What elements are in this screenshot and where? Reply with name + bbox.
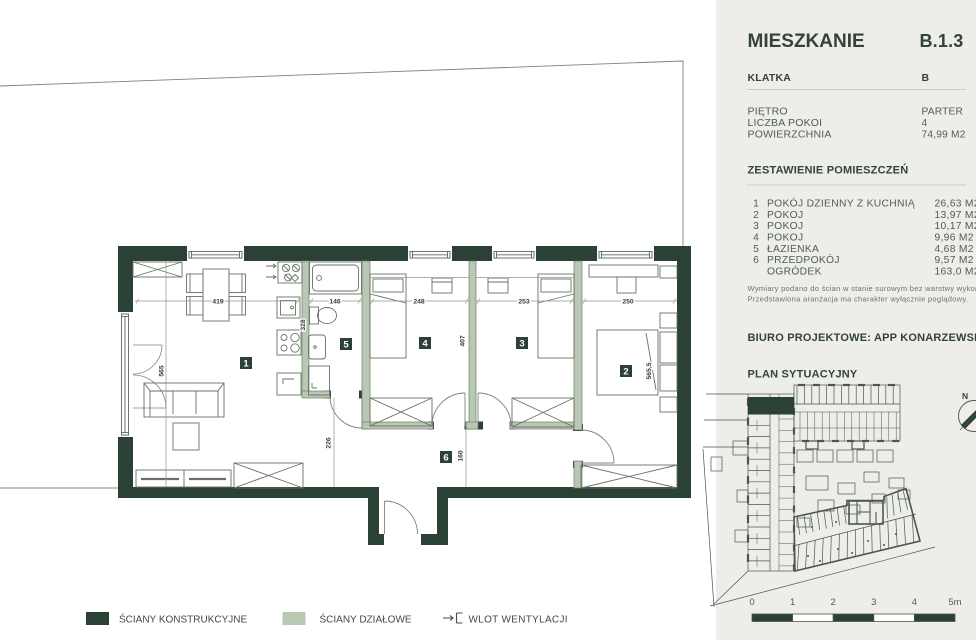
svg-text:KLATKA: KLATKA — [748, 72, 792, 84]
svg-text:4: 4 — [753, 233, 759, 244]
svg-text:163,0 M2: 163,0 M2 — [935, 266, 976, 277]
svg-text:13,97 M2: 13,97 M2 — [935, 210, 976, 221]
svg-text:248: 248 — [413, 299, 425, 306]
svg-text:PARTER: PARTER — [922, 107, 964, 118]
svg-text:0: 0 — [749, 597, 754, 608]
svg-text:Przedstawiona aranżacja ma cha: Przedstawiona aranżacja ma charakter wył… — [748, 295, 969, 304]
svg-text:407: 407 — [460, 335, 467, 347]
svg-text:MIESZKANIE: MIESZKANIE — [748, 31, 865, 52]
svg-text:WLOT WENTYLACJI: WLOT WENTYLACJI — [469, 615, 568, 626]
svg-text:5: 5 — [343, 339, 349, 350]
svg-text:26,63 M2: 26,63 M2 — [935, 199, 976, 210]
svg-text:1: 1 — [243, 358, 249, 369]
svg-text:6: 6 — [753, 255, 759, 266]
svg-text:2: 2 — [831, 597, 836, 608]
svg-text:2: 2 — [753, 210, 759, 221]
svg-text:PIĘTRO: PIĘTRO — [748, 106, 788, 118]
svg-text:250: 250 — [622, 299, 634, 306]
svg-text:9,57 M2: 9,57 M2 — [935, 255, 974, 266]
svg-text:10,17 M2: 10,17 M2 — [935, 221, 976, 232]
svg-text:253: 253 — [518, 299, 530, 306]
svg-text:3: 3 — [519, 338, 524, 349]
svg-text:328: 328 — [300, 319, 307, 331]
svg-text:ŚCIANY DZIAŁOWE: ŚCIANY DZIAŁOWE — [320, 613, 412, 626]
svg-text:565: 565 — [159, 365, 166, 377]
svg-text:POKÓJ DZIENNY Z KUCHNIĄ: POKÓJ DZIENNY Z KUCHNIĄ — [767, 197, 915, 210]
svg-text:PRZEDPOKÓJ: PRZEDPOKÓJ — [767, 253, 840, 266]
svg-text:565,5: 565,5 — [646, 362, 653, 379]
svg-text:B.1.3: B.1.3 — [919, 31, 963, 51]
svg-text:1: 1 — [753, 199, 759, 210]
svg-text:419: 419 — [212, 299, 224, 306]
svg-text:POKOJ: POKOJ — [767, 210, 803, 221]
svg-text:226: 226 — [326, 437, 333, 449]
svg-text:POKOJ: POKOJ — [767, 233, 803, 244]
svg-text:OGRÓDEK: OGRÓDEK — [767, 264, 822, 277]
svg-text:N: N — [962, 391, 968, 401]
svg-text:6: 6 — [443, 452, 448, 463]
svg-text:3: 3 — [871, 597, 876, 608]
svg-text:BIURO PROJEKTOWE: APP KONARZEW: BIURO PROJEKTOWE: APP KONARZEWSKI PRACOW… — [748, 332, 976, 344]
svg-text:PLAN SYTUACYJNY: PLAN SYTUACYJNY — [748, 369, 858, 381]
svg-text:5m: 5m — [948, 597, 961, 608]
svg-text:160: 160 — [458, 450, 465, 462]
svg-text:POKOJ: POKOJ — [767, 221, 803, 232]
svg-text:4,68 M2: 4,68 M2 — [935, 244, 974, 255]
svg-text:4: 4 — [912, 597, 917, 608]
svg-text:ZESTAWIENIE POMIESZCZEŃ: ZESTAWIENIE POMIESZCZEŃ — [748, 164, 909, 177]
svg-text:B: B — [922, 72, 930, 84]
svg-text:Wymiary podano do ścian w stan: Wymiary podano do ścian w stanie surowym… — [748, 284, 976, 293]
svg-text:74,99 M2: 74,99 M2 — [922, 129, 966, 140]
svg-text:4: 4 — [922, 118, 928, 129]
svg-text:146: 146 — [329, 299, 341, 306]
svg-text:LICZBA POKOI: LICZBA POKOI — [748, 117, 823, 129]
svg-text:ŚCIANY KONSTRUKCYJNE: ŚCIANY KONSTRUKCYJNE — [119, 613, 248, 626]
svg-text:3: 3 — [753, 221, 759, 232]
svg-text:5: 5 — [753, 244, 759, 255]
svg-text:POWIERZCHNIA: POWIERZCHNIA — [748, 128, 832, 140]
svg-text:1: 1 — [790, 597, 795, 608]
svg-text:9,96 M2: 9,96 M2 — [935, 233, 974, 244]
svg-text:ŁAZIENKA: ŁAZIENKA — [767, 244, 819, 255]
svg-text:2: 2 — [623, 366, 628, 377]
svg-text:4: 4 — [422, 338, 428, 349]
